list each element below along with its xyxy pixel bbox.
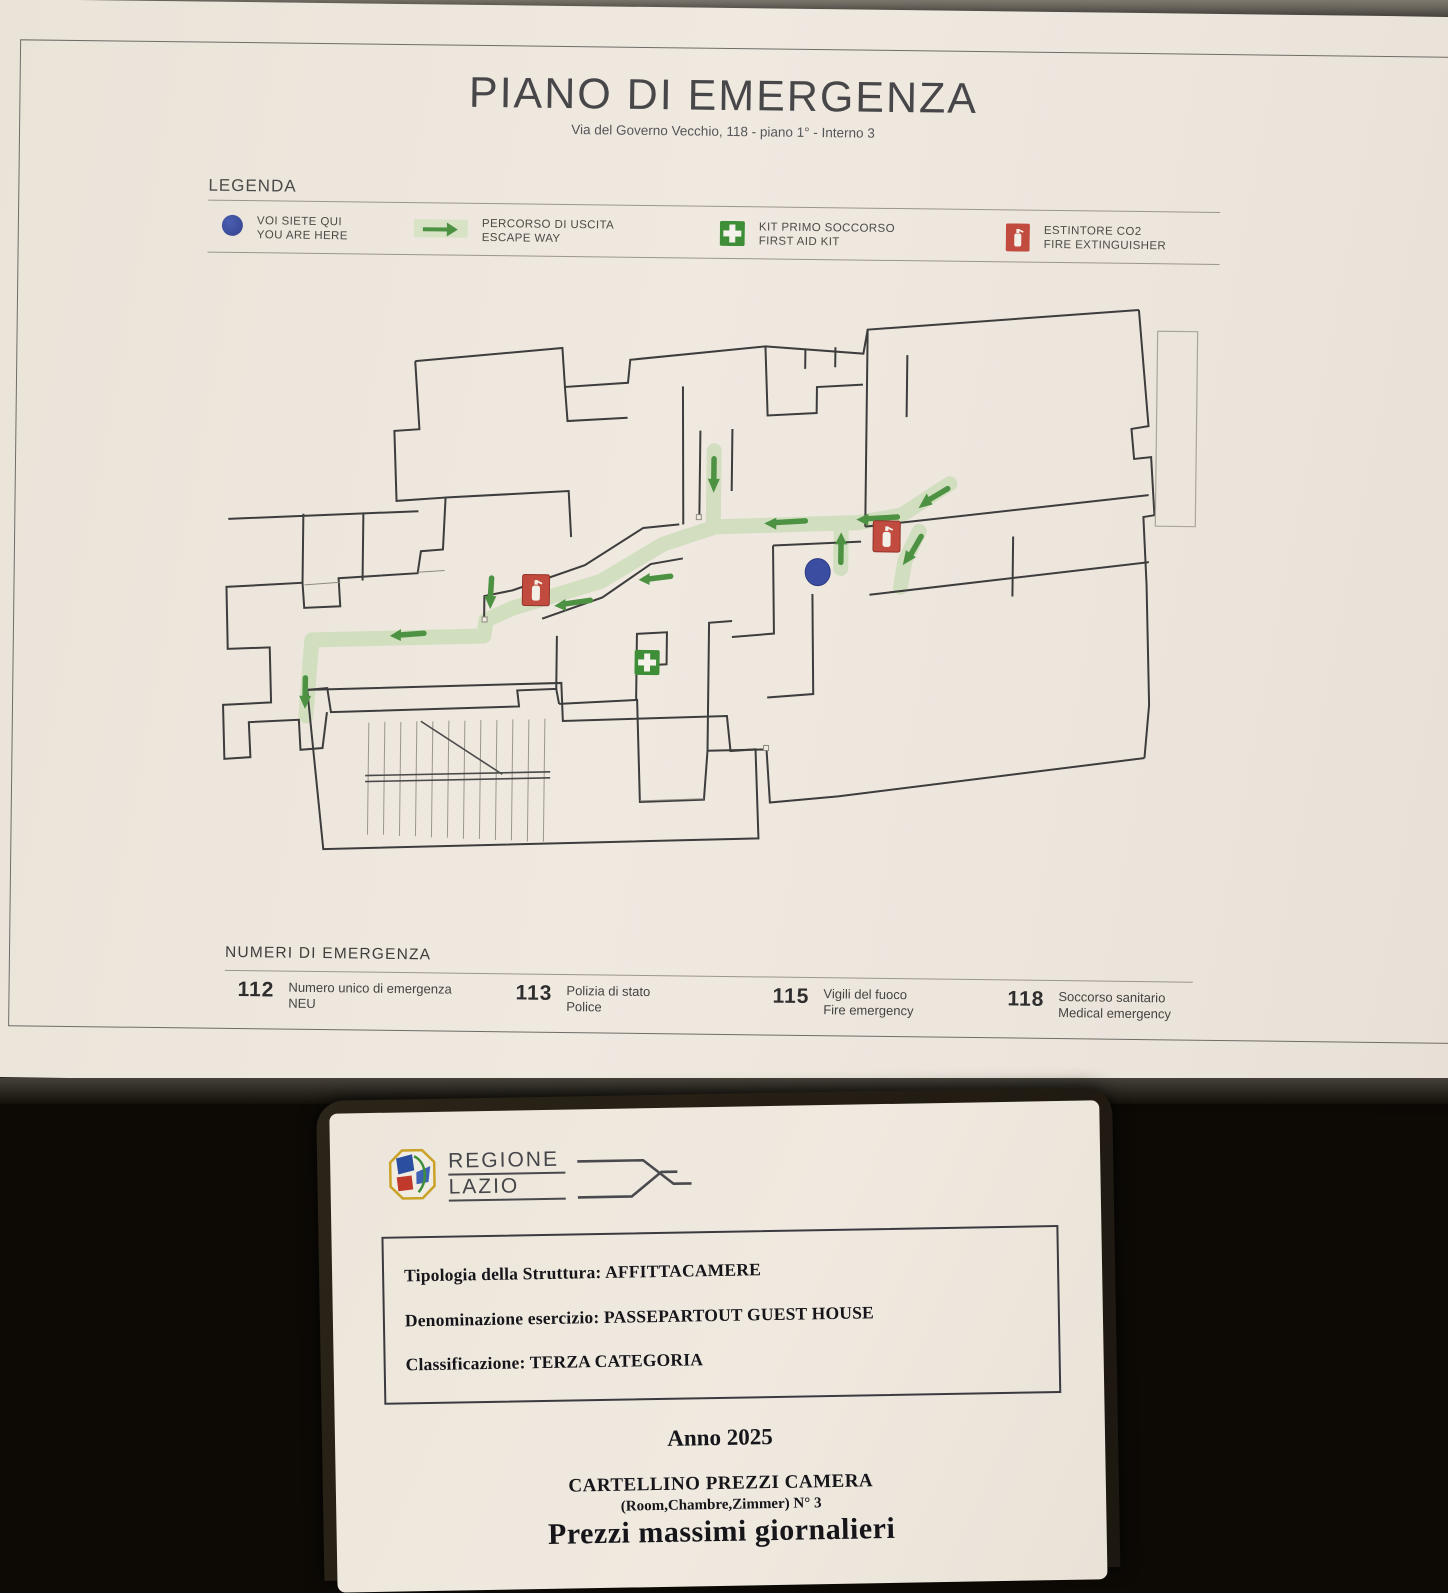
floor-plan xyxy=(209,287,1226,889)
legend-label-en: ESCAPE WAY xyxy=(482,231,614,247)
number-label-en: Medical emergency xyxy=(1058,1005,1171,1022)
legend-item-first-aid: KIT PRIMO SOCCORSO FIRST AID KIT xyxy=(720,218,895,250)
structure-info-box: Tipologia della Struttura: AFFITTACAMERE… xyxy=(381,1225,1061,1405)
number: 112 xyxy=(237,978,274,1002)
number-label: Numero unico di emergenza xyxy=(288,980,451,998)
door-marks xyxy=(302,510,771,803)
escape-route xyxy=(306,446,950,724)
you-are-here-dot-icon xyxy=(222,215,243,236)
plan-extinguisher-2 xyxy=(522,574,549,605)
number-label: Polizia di stato xyxy=(566,983,650,1000)
legend-item-extinguisher: ESTINTORE CO2 FIRE EXTINGUISHER xyxy=(1006,221,1167,253)
year-heading: Anno 2025 xyxy=(335,1418,1105,1457)
logo-text-regione: REGIONE xyxy=(448,1148,565,1176)
price-card: REGIONE LAZIO Tipologia della Struttura:… xyxy=(329,1100,1107,1592)
number-label-en: Police xyxy=(566,999,650,1016)
legend-label-en: YOU ARE HERE xyxy=(257,228,348,243)
emergency-number-118: 118 Soccorso sanitario Medical emergency xyxy=(1007,987,1171,1022)
regione-lazio-logo: REGIONE LAZIO xyxy=(388,1143,710,1209)
escape-way-arrow-icon xyxy=(414,219,468,238)
legend-label: VOI SIETE QUI xyxy=(257,214,348,229)
price-card-sleeve: REGIONE LAZIO Tipologia della Struttura:… xyxy=(316,1087,1120,1581)
you-are-here-marker xyxy=(805,558,830,585)
number-label: Soccorso sanitario xyxy=(1058,989,1171,1006)
emergency-number-113: 113 Polizia di stato Police xyxy=(515,981,650,1016)
number-label-en: Fire emergency xyxy=(823,1002,914,1019)
regione-lazio-emblem-icon xyxy=(388,1148,437,1201)
legend-item-escape-way: PERCORSO DI USCITA ESCAPE WAY xyxy=(414,214,615,246)
plan-first-aid-kit xyxy=(634,650,659,675)
number-label: Vigili del fuoco xyxy=(823,986,914,1003)
business-name-line: Denominazione esercizio: PASSEPARTOUT GU… xyxy=(405,1299,1038,1331)
stair-rail xyxy=(365,721,551,784)
arrow-left xyxy=(639,573,671,585)
legend-heading: LEGENDA xyxy=(208,176,296,197)
emergency-numbers-heading: NUMERI DI EMERGENZA xyxy=(225,944,431,965)
number: 113 xyxy=(515,981,552,1005)
structure-type-line: Tipologia della Struttura: AFFITTACAMERE xyxy=(404,1255,1037,1287)
logo-zigzag-icon xyxy=(577,1147,710,1205)
legend-item-you-are-here: VOI SIETE QUI YOU ARE HERE xyxy=(222,212,348,244)
legend-label-en: FIRE EXTINGUISHER xyxy=(1044,238,1167,253)
classification-line: Classificazione: TERZA CATEGORIA xyxy=(405,1343,1038,1375)
number-label-en: NEU xyxy=(288,996,451,1014)
emergency-number-115: 115 Vigili del fuoco Fire emergency xyxy=(772,985,914,1020)
number: 118 xyxy=(1007,987,1044,1011)
fire-extinguisher-icon xyxy=(1006,223,1030,251)
emergency-plan-poster: PIANO DI EMERGENZA Via del Governo Vecch… xyxy=(0,0,1448,1095)
terrace-outline xyxy=(1155,331,1197,526)
number: 115 xyxy=(772,985,809,1009)
logo-text-lazio: LAZIO xyxy=(448,1174,565,1202)
walls xyxy=(221,299,1157,859)
first-aid-cross-icon xyxy=(720,221,745,246)
legend-label: ESTINTORE CO2 xyxy=(1044,224,1167,239)
emergency-number-112: 112 Numero unico di emergenza NEU xyxy=(237,978,452,1014)
legend-label-en: FIRST AID KIT xyxy=(759,234,895,250)
plan-extinguisher-1 xyxy=(873,521,900,552)
